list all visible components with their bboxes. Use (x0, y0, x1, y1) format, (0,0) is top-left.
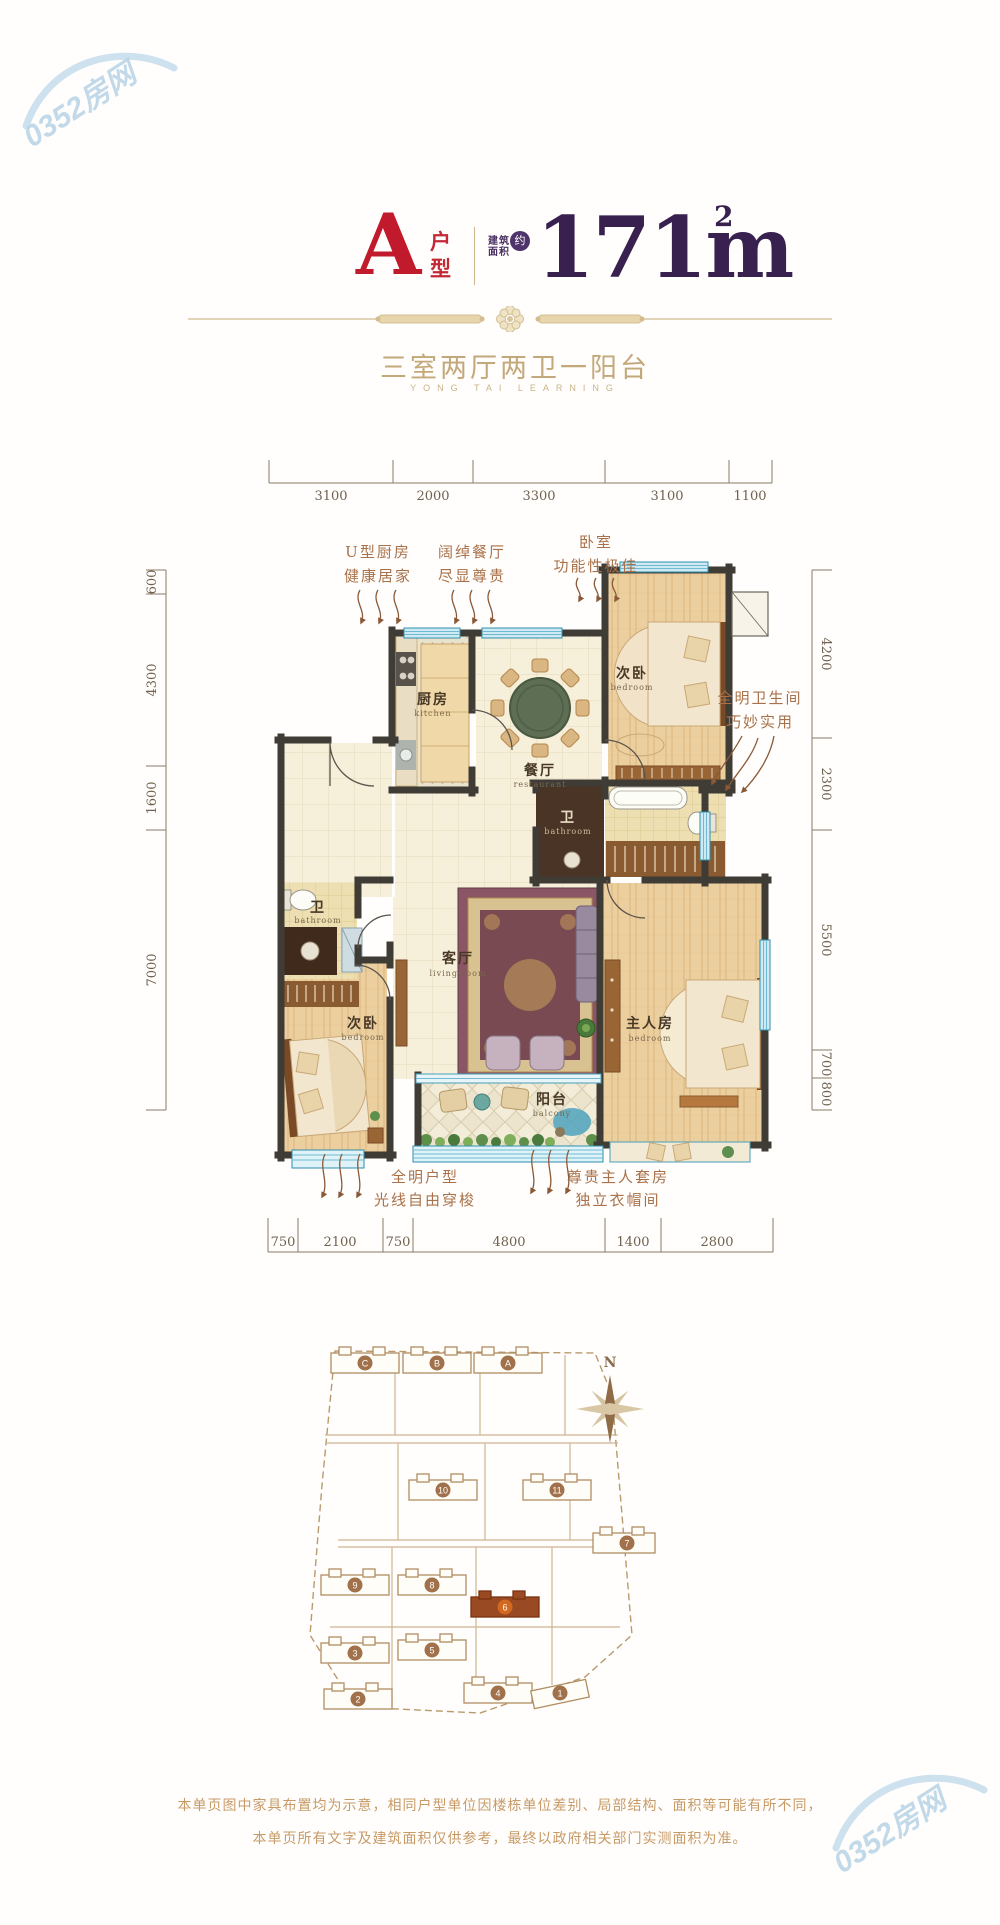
tv-cabinet-icon (396, 960, 407, 1046)
area-prefix-1: 建筑 (488, 236, 510, 247)
svg-text:A: A (505, 1359, 511, 1369)
bath-left-label: 卫 (310, 900, 326, 916)
dim-right-5: 800 (818, 1082, 833, 1107)
ornament-divider (180, 306, 840, 332)
stove-icon (396, 652, 416, 686)
living-label: 客厅 (441, 950, 474, 967)
ac-bay-icon (732, 592, 768, 636)
dimension-right: 4200 2300 5500 700 800 (812, 570, 833, 1110)
dim-right-4: 700 (818, 1052, 833, 1077)
building-2: 2 (324, 1683, 392, 1709)
dim-top-3: 3300 (522, 489, 555, 504)
divider-spindle-right (538, 315, 642, 323)
note-master-2: 独立衣帽间 (575, 1191, 660, 1209)
dining-label-en: restaurant (514, 780, 567, 789)
floor-plan: 3100 2000 3300 3100 1100 750 2100 750 48… (120, 440, 840, 1290)
building-A: A (474, 1347, 542, 1373)
note-master-1: 尊贵主人套房 (567, 1168, 669, 1186)
note-bedroom-2: 功能性极佳 (553, 557, 638, 575)
area-value: 171m (536, 206, 792, 290)
building-5: 5 (398, 1634, 466, 1660)
bedroom-top-label: 次卧 (616, 665, 648, 682)
dim-bottom-1: 750 (271, 1235, 296, 1250)
bath-right-label-en: bathroom (544, 827, 591, 836)
area-prefix: 建筑 面积 (488, 236, 510, 258)
bedroom-left-label-en: bedroom (341, 1033, 384, 1042)
area-approx-badge: 约 (510, 231, 530, 251)
building-B: B (403, 1347, 471, 1373)
armchair-icon (530, 1036, 564, 1070)
compass: N (573, 1355, 647, 1446)
lounge-chair-icon (439, 1088, 468, 1112)
bath-left-label-en: bathroom (294, 916, 341, 925)
svg-text:4: 4 (495, 1689, 500, 1699)
bathtub-icon (609, 787, 687, 809)
tea-table-icon (474, 1094, 490, 1110)
subtitle-en: YONG TAI LEARNING (15, 383, 1000, 393)
note-dining-2: 尽显尊贵 (438, 567, 506, 585)
building-8: 8 (398, 1569, 466, 1595)
divider-spindle-left (378, 315, 482, 323)
header-divider (474, 227, 475, 285)
master-window-icon (760, 940, 770, 1030)
svg-text:7: 7 (624, 1539, 629, 1549)
bedroom-left-label: 次卧 (347, 1015, 379, 1032)
note-bedroom-1: 卧室 (579, 533, 613, 551)
building-6-highlighted: 6 (471, 1591, 539, 1617)
dim-bottom-3: 750 (386, 1235, 411, 1250)
living-label-en: living room (429, 969, 486, 978)
nightstand-icon (368, 1128, 383, 1143)
dim-left-4: 7000 (145, 953, 160, 986)
svg-text:8: 8 (429, 1581, 434, 1591)
balcony-rail-icon (413, 1146, 603, 1162)
dim-top-1: 3100 (314, 489, 347, 504)
building-1: 1 (531, 1679, 590, 1708)
bedroom-left-bay-icon (292, 1150, 364, 1168)
watermark-top-left: 0352房网 (12, 30, 192, 170)
unit-type-label: 户 型 (430, 229, 451, 282)
bath-right-window-icon (700, 812, 710, 860)
dim-right-3: 5500 (818, 923, 833, 956)
dining-window-icon (482, 628, 562, 638)
dining-label: 餐厅 (523, 762, 556, 779)
master-label-en: bedroom (628, 1034, 671, 1043)
note-kitchen-2: 健康居家 (344, 567, 412, 585)
bath-right-label: 卫 (560, 810, 576, 826)
building-9: 9 (321, 1569, 389, 1595)
svg-text:B: B (434, 1359, 440, 1369)
dresser-icon (605, 960, 620, 1072)
unit-type-label-1: 户 (430, 229, 451, 256)
flower-ornament-icon (497, 306, 524, 332)
kitchen-window-icon (404, 628, 460, 638)
dim-bottom-6: 2800 (700, 1235, 733, 1250)
svg-text:2: 2 (355, 1695, 360, 1705)
compass-star-ew (576, 1403, 644, 1415)
area-prefix-2: 面积 (488, 247, 510, 258)
dim-right-2: 2300 (818, 767, 833, 800)
note-dining-1: 阔绰餐厅 (438, 543, 506, 561)
note-bath-1: 全明卫生间 (717, 689, 802, 707)
closet-strip (281, 981, 359, 1007)
balcony-label-en: balcony (533, 1109, 571, 1118)
dim-bottom-2: 2100 (323, 1235, 356, 1250)
dim-left-2: 4300 (145, 663, 160, 696)
armchair-icon (486, 1036, 520, 1070)
building-10: 10 (409, 1474, 477, 1500)
area-superscript: 2 (714, 200, 733, 233)
dim-right-1: 4200 (818, 637, 833, 670)
svg-text:1: 1 (557, 1689, 562, 1699)
bedroom-top-label-en: bedroom (610, 683, 653, 692)
building-3: 3 (321, 1637, 389, 1663)
lounge-chair-icon (501, 1086, 529, 1110)
note-bath-2: 巧妙实用 (726, 713, 794, 731)
unit-type-letter: A (356, 203, 421, 287)
master-label: 主人房 (626, 1015, 674, 1032)
svg-text:11: 11 (552, 1486, 561, 1496)
watermark-bottom-right: 0352房网 (822, 1752, 1000, 1902)
dim-top-4: 3100 (650, 489, 683, 504)
master-bay-icon (610, 1142, 750, 1162)
dim-top-5: 1100 (733, 489, 766, 504)
balcony-label: 阳台 (536, 1091, 568, 1108)
svg-text:3: 3 (352, 1649, 357, 1659)
kitchen-label: 厨房 (417, 691, 449, 708)
dimension-bottom: 750 2100 750 4800 1400 2800 (268, 1218, 773, 1252)
building-11: 11 (523, 1474, 591, 1500)
dimension-left: 600 4300 1600 7000 (145, 570, 166, 1110)
dim-bottom-5: 1400 (616, 1235, 649, 1250)
subtitle-cn: 三室两厅两卫一阳台 (15, 346, 1000, 385)
site-plan: C B A 10 11 7 9 8 (280, 1335, 680, 1720)
kitchen-label-en: kitchen (414, 709, 451, 718)
note-daylight-2: 光线自由穿梭 (374, 1191, 476, 1209)
svg-text:6: 6 (502, 1603, 507, 1613)
note-daylight-1: 全明户型 (391, 1168, 459, 1186)
dim-bottom-4: 4800 (492, 1235, 525, 1250)
svg-text:9: 9 (352, 1581, 357, 1591)
compass-n-label: N (604, 1355, 617, 1371)
flyer-page: 0352房网 A 户 型 建筑 面积 约 171m 2 (0, 0, 1000, 1925)
unit-type-label-2: 型 (430, 256, 451, 283)
basin-icon (564, 852, 580, 868)
note-kitchen-1: U型厨房 (345, 543, 411, 561)
svg-text:5: 5 (429, 1646, 434, 1656)
basin-icon (301, 942, 319, 960)
svg-text:10: 10 (438, 1486, 448, 1496)
dim-left-3: 1600 (145, 781, 160, 814)
svg-text:C: C (362, 1359, 369, 1369)
plant-icon (370, 1111, 380, 1121)
dimension-top: 3100 2000 3300 3100 1100 (269, 460, 772, 504)
building-4: 4 (464, 1677, 532, 1703)
balcony-glass-icon (416, 1074, 601, 1083)
dim-top-2: 2000 (416, 489, 449, 504)
dim-left-1: 600 (145, 570, 160, 595)
